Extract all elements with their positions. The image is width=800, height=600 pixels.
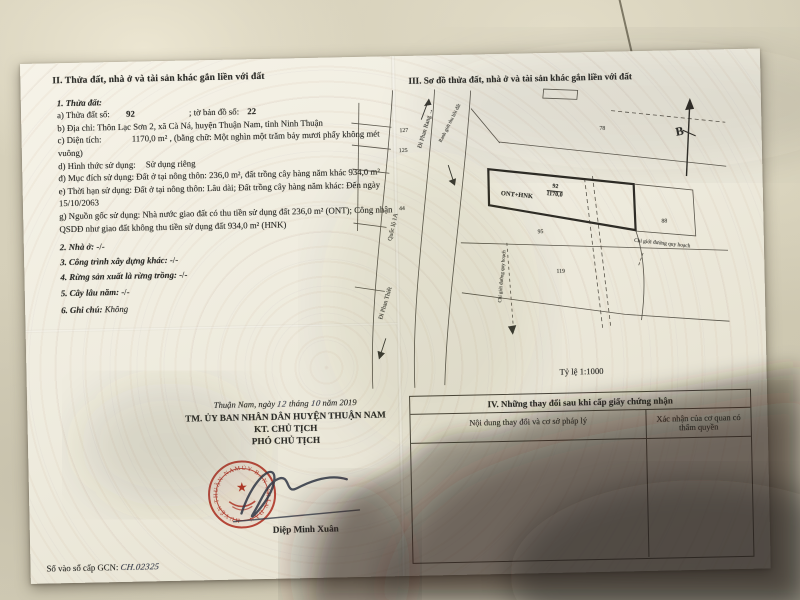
use-form-value: Sử dụng riêng: [146, 158, 196, 169]
parcel-number-value: 92: [126, 109, 135, 119]
use-origin-label: g) Nguồn gốc sử dụng:: [59, 209, 140, 221]
gcn-serial-line: Số vào sổ cấp GCN: CH.02325: [46, 561, 159, 573]
horizontal-fold-crease: [26, 322, 398, 333]
gcn-serial-value: CH.02325: [120, 561, 160, 572]
forest-label: 4. Rừng sản xuất là rừng trồng:: [60, 270, 177, 282]
use-term-label: e) Thời hạn sử dụng:: [59, 184, 132, 196]
forest-value: -/-: [179, 269, 188, 279]
map-parcel-44: 44: [399, 206, 405, 212]
month-word: tháng: [289, 398, 309, 408]
place-word: Thuận Nam, ngày: [214, 399, 276, 410]
section-iv-body-col1: [411, 439, 650, 562]
handwritten-day: 12: [277, 398, 288, 408]
map-parcel-95: 95: [538, 229, 544, 235]
perennial-value: -/-: [121, 287, 130, 297]
signature-block: Thuận Nam, ngày 12 tháng 10 năm 2019 TM.…: [155, 396, 416, 448]
area-value: 1170,0 m²: [132, 133, 168, 144]
map-sheet-value: 22: [247, 106, 256, 116]
map-sheet-label: ; tờ bản đồ số:: [189, 107, 239, 118]
map-parcel-125: 125: [399, 148, 408, 154]
line-notes: 6. Ghi chú: Không: [61, 297, 397, 317]
parcel-92-number-area: 92 1170,0: [546, 183, 564, 200]
section-ii-heading: II. Thửa đất, nhà ở và tài sản khác gắn …: [52, 68, 392, 88]
other-construction-label: 3. Công trình xây dựng khác:: [60, 255, 168, 267]
parcel-number-label: a) Thửa đất số:: [57, 109, 110, 120]
map-parcel-119: 119: [556, 269, 565, 275]
section-iv-body-col2: [647, 437, 753, 557]
use-purpose-label: đ) Mục đích sử dụng:: [58, 172, 134, 184]
gcn-serial-label: Số vào sổ cấp GCN:: [46, 562, 118, 574]
house-label: 2. Nhà ở:: [60, 242, 94, 253]
notes-value: Không: [105, 304, 129, 314]
house-value: -/-: [96, 242, 105, 252]
map-parcel-127: 127: [399, 128, 408, 134]
section-iv-table: IV. Những thay đổi sau khi cấp giấy chứn…: [409, 389, 754, 564]
section-ii: II. Thửa đất, nhà ở và tài sản khác gắn …: [52, 68, 397, 317]
perennial-label: 5. Cây lâu năm:: [61, 287, 119, 298]
use-form-label: d) Hình thức sử dụng:: [58, 159, 136, 171]
parcel-92-area: 1170,0: [546, 191, 563, 200]
land-certificate-page: II. Thửa đất, nhà ở và tài sản khác gắn …: [20, 49, 771, 584]
notes-label: 6. Ghi chú:: [61, 304, 103, 315]
map-parcel-88: 88: [661, 218, 667, 224]
handwritten-month: 10: [310, 398, 321, 408]
address-label: b) Địa chỉ:: [57, 122, 95, 133]
section-iv-col1-header: Nội dung thay đổi và cơ sở pháp lý: [410, 410, 647, 443]
section-iv-col2-header: Xác nhận của cơ quan có thẩm quyền: [646, 408, 751, 438]
year-word: năm 2019: [322, 397, 356, 408]
map-parcel-78: 78: [599, 126, 605, 132]
other-construction-value: -/-: [170, 255, 179, 265]
area-label: c) Diện tích:: [58, 135, 102, 146]
